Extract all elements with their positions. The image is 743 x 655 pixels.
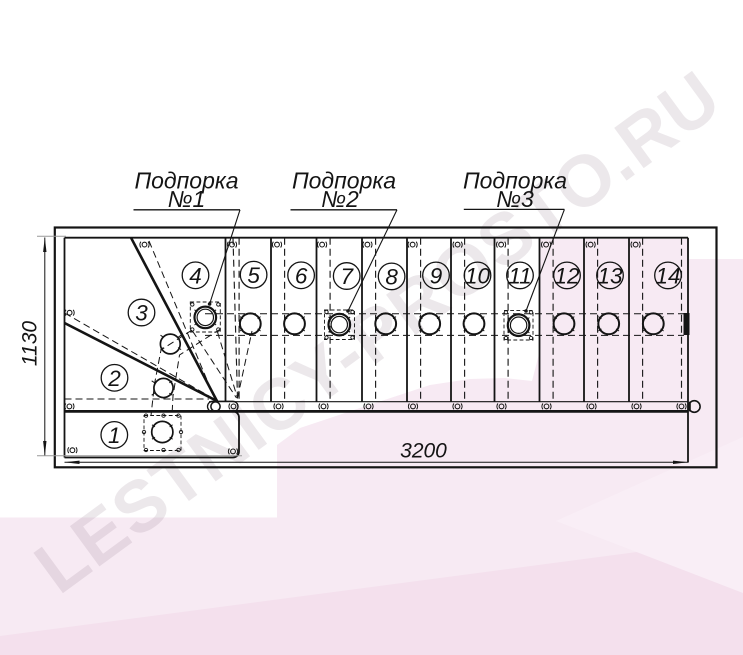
svg-text:6: 6 (295, 264, 308, 289)
svg-text:9: 9 (430, 264, 443, 289)
svg-text:14: 14 (655, 264, 680, 289)
svg-text:7: 7 (340, 264, 354, 289)
svg-text:12: 12 (554, 264, 580, 289)
svg-text:№2: №2 (321, 186, 359, 212)
svg-text:№1: №1 (168, 186, 206, 212)
svg-text:11: 11 (508, 264, 531, 289)
svg-text:4: 4 (189, 264, 202, 289)
svg-text:13: 13 (597, 264, 623, 289)
svg-text:8: 8 (385, 265, 398, 290)
svg-text:10: 10 (465, 264, 491, 289)
svg-text:3200: 3200 (400, 440, 447, 463)
svg-text:5: 5 (247, 263, 260, 288)
svg-text:3: 3 (135, 301, 148, 326)
svg-text:№3: №3 (496, 186, 534, 212)
svg-text:2: 2 (107, 366, 121, 391)
svg-text:1130: 1130 (19, 321, 42, 366)
svg-text:1: 1 (108, 423, 121, 448)
